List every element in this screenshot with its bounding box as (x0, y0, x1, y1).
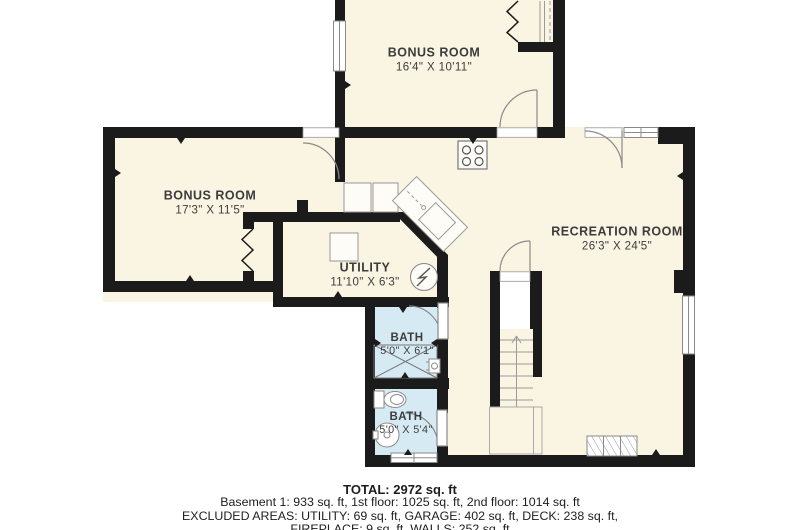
summary-total: TOTAL: 2972 sq. ft (0, 483, 800, 496)
water-heater-icon (330, 233, 358, 261)
area-summary: TOTAL: 2972 sq. ft Basement 1: 933 sq. f… (0, 483, 800, 530)
floor-plan-canvas (0, 0, 800, 530)
summary-excluded-2: FIREPLACE: 9 sq. ft, WALLS: 252 sq. ft (0, 523, 800, 530)
fireplace (587, 436, 637, 456)
summary-excluded-1: EXCLUDED AREAS: UTILITY: 69 sq. ft, GARA… (0, 510, 800, 523)
electrical-panel-icon (411, 264, 438, 291)
toilet-icon (374, 391, 406, 408)
washer-dryer-icon (344, 183, 398, 212)
stove-icon (458, 141, 487, 169)
summary-floors: Basement 1: 933 sq. ft, 1st floor: 1025 … (0, 496, 800, 509)
floor-plan-page: BONUS ROOM 16'4" X 10'11" BONUS ROOM 17'… (0, 0, 800, 530)
under-stair-closet (500, 282, 532, 329)
